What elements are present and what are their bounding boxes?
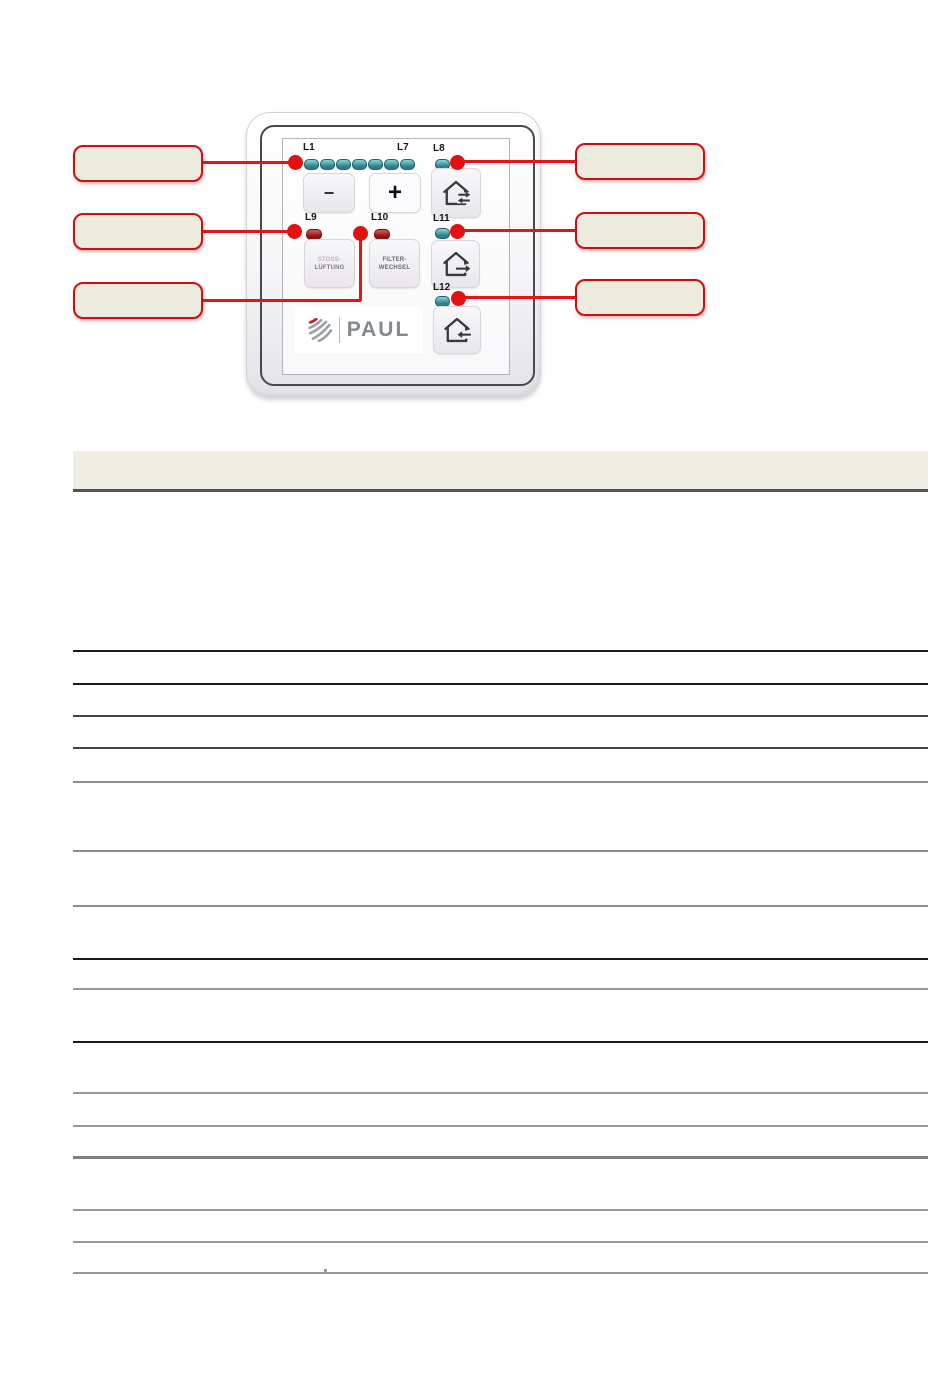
led-label-l9: L9 [305,212,317,223]
led-indicator-6 [384,159,399,170]
connector-line-l10-vertical [359,234,362,301]
led-indicator-2 [320,159,335,170]
table-row-divider [73,850,928,852]
led-label-l10: L10 [371,212,388,223]
callout-box-left-3 [73,282,203,319]
connector-dot-l9 [287,224,302,239]
paul-logo-mark-icon [308,318,332,342]
led-label-l11: L11 [433,213,450,224]
stray-mark [324,1269,327,1273]
logo-separator [339,317,340,343]
led-indicator-1 [304,159,319,170]
house-arrow-in-button [433,306,481,354]
led-indicator-5 [368,159,383,170]
house-exchange-icon [441,178,471,208]
connector-line-l9 [203,230,297,233]
paul-logo: PAUL [295,307,423,353]
led-indicator-l11 [435,228,450,239]
table-row-divider [73,715,928,717]
connector-line-l12 [458,296,576,299]
connector-dot-l11 [450,224,465,239]
connector-line-l10-horizontal [203,299,361,302]
table-row-divider [73,905,928,907]
led-label-l8: L8 [433,143,445,154]
table-row-divider [73,1241,928,1243]
table-row-divider [73,683,928,685]
house-arrow-out-icon [441,249,471,279]
page: L1 L7 L8 − + [0,0,950,1387]
table-row-divider [73,1156,928,1159]
plus-button: + [369,173,421,213]
led-indicator-4 [352,159,367,170]
connector-line-l1 [203,161,295,164]
connector-dot-l8 [450,155,465,170]
stosslueftung-button: STOSS- LÜFTUNG [304,239,355,288]
filter-line2: WECHSEL [379,265,410,271]
connector-line-l8 [457,160,576,163]
table-row-divider [73,958,928,960]
filter-line1: FILTER- [383,257,407,263]
connector-line-l11 [457,229,576,232]
table-row-divider [73,988,928,990]
table-row-divider [73,1125,928,1127]
house-arrow-out-button [431,240,480,288]
connector-dot-l1 [288,155,303,170]
house-exchange-button [431,168,481,218]
led-label-l7: L7 [397,142,409,153]
table-row-divider [73,650,928,652]
table-header-bar [73,451,928,492]
callout-box-left-2 [73,213,203,250]
minus-button: − [303,173,355,213]
led-label-l1: L1 [303,142,315,153]
connector-dot-l12 [451,291,466,306]
led-label-l12: L12 [433,282,450,293]
house-arrow-in-icon [442,315,472,345]
table-row-divider [73,1041,928,1043]
table-row-divider [73,781,928,783]
plus-glyph: + [388,179,402,207]
filterwechsel-button: FILTER- WECHSEL [369,239,420,288]
led-indicator-3 [336,159,351,170]
callout-box-left-1 [73,145,203,182]
paul-logo-text: PAUL [347,318,411,342]
led-indicator-7 [400,159,415,170]
device-photo: L1 L7 L8 − + [246,112,541,397]
table-row-divider [73,747,928,749]
connector-dot-l10 [353,226,368,241]
table-row-divider [73,1209,928,1211]
callout-box-right-2 [575,212,705,249]
callout-box-right-1 [575,143,705,180]
stoss-line1: STOSS- [318,257,341,263]
table-row-divider [73,1272,928,1274]
stoss-line2: LÜFTUNG [314,265,344,271]
table-row-divider [73,1092,928,1094]
minus-glyph: − [324,183,335,204]
callout-box-right-3 [575,279,705,316]
